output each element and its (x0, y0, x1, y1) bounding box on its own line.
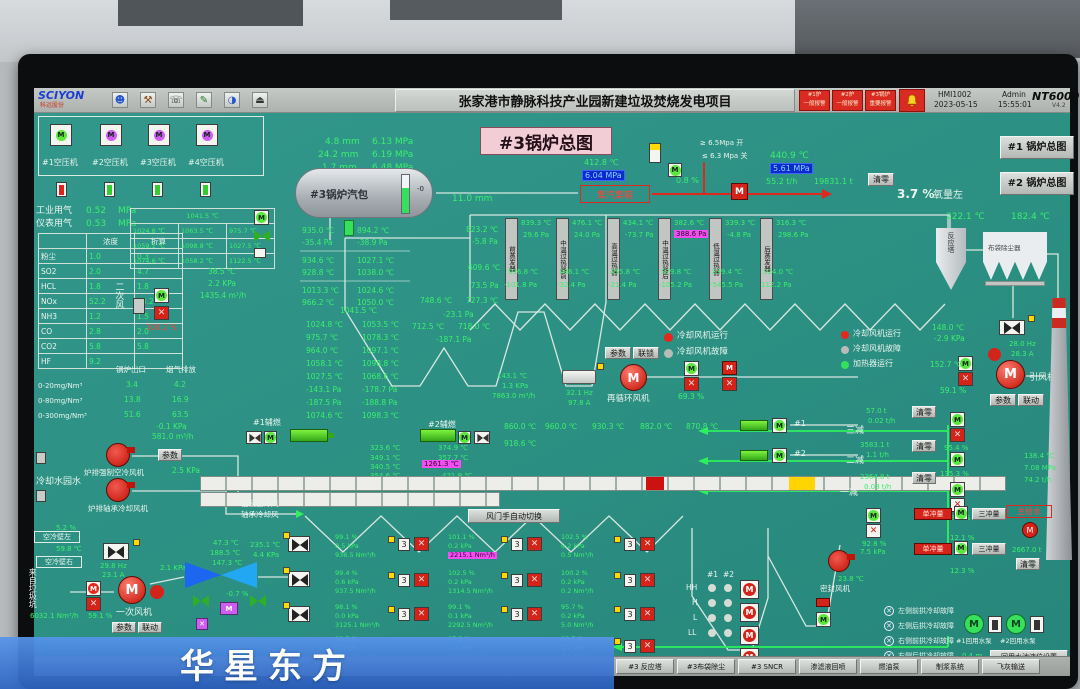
damper-icon[interactable] (527, 537, 542, 551)
burner-2-box[interactable] (474, 431, 490, 444)
fw-reg-pct-2: 12.3 % (950, 567, 974, 575)
paf-motor[interactable]: M (118, 576, 146, 604)
feedwater-flow: 74.2 t/h (1024, 476, 1051, 484)
hx-press: -73.7 Pa (625, 231, 654, 239)
wall-temp: 966.2 ℃ (302, 299, 334, 308)
instrument-air-value: 0.53 (86, 219, 106, 229)
range-header-2: 烟气排放 (166, 366, 196, 375)
safety-valve-icon[interactable] (649, 143, 661, 163)
hx-temp: 839.3 ℃ (521, 219, 551, 227)
vent-valve-motor[interactable] (254, 210, 269, 225)
window-frame (118, 0, 303, 26)
furnace-outlet-temp: 882.0 ℃ (640, 423, 672, 432)
aph-temp-3: 147.3 ℃ (212, 559, 242, 567)
paf-damper-motor[interactable] (86, 581, 101, 596)
single-element-box[interactable]: 单冲量 (914, 508, 952, 520)
desup-flow: 0.02 t/h (868, 417, 895, 425)
damper-flow: 936.5 Nm³/h (335, 552, 376, 559)
mode-box[interactable] (624, 574, 636, 587)
level-label: LL (688, 629, 696, 638)
recirc-fan-motor[interactable]: M (620, 364, 647, 391)
compressor-2-motor[interactable] (100, 124, 122, 146)
furnace-press: -187.5 Pa (306, 399, 341, 408)
desup-clear-button[interactable]: 清零 (912, 406, 936, 418)
vent-motor-valve[interactable] (668, 163, 682, 177)
misc-press: 7.5 kPa (860, 548, 886, 556)
compressor-3-motor[interactable] (148, 124, 170, 146)
fw-reg-motor-2[interactable] (954, 541, 968, 555)
wall-press: -35.4 Pa (302, 239, 333, 248)
desup-label: 一减 (840, 488, 858, 498)
wall-temp: 928.8 ℃ (302, 269, 334, 278)
range-row-label: 0-300mg/Nm³ (38, 412, 87, 420)
damper-icon[interactable] (414, 607, 429, 621)
mode-box[interactable] (398, 538, 410, 551)
rlegend-fault-dot (841, 346, 849, 354)
tools-icon[interactable] (140, 92, 156, 108)
steam-header-label: 集汽集箱 (597, 188, 633, 201)
table-row: HF9.2 (39, 354, 183, 369)
gfan-press-2: 2.5 KPa (172, 467, 200, 476)
recirc-hz: 32.1 Hz (566, 389, 593, 397)
valve-pair[interactable] (288, 606, 310, 622)
range-header-1: 锅炉出口 (116, 366, 146, 375)
recirc-param-button[interactable]: 参数 (605, 347, 631, 359)
grate-bearing-fan-label: 炉排轴承冷却风机 (88, 505, 148, 514)
hx-temp: 476.1 ℃ (572, 219, 602, 227)
range-row-value: 63.5 (172, 411, 189, 420)
compressor-4-motor[interactable] (196, 124, 218, 146)
level-lamp (724, 599, 732, 607)
damper-pct: 102.5 % (561, 534, 588, 541)
valve-pair[interactable] (288, 571, 310, 587)
idf-link-button[interactable]: 联动 (1018, 394, 1044, 406)
damper-kpa: 0.6 kPa (335, 579, 359, 586)
idf-inlet-press: -2.9 KPa (934, 335, 965, 344)
rlegend-run: 冷却风机运行 (853, 329, 901, 338)
table-row: 1059.1 ℃1098.8 ℃1027.5 ℃ (131, 239, 275, 254)
paf-amp: 23.1 A (102, 571, 125, 579)
baghouse-base (985, 281, 1045, 286)
wall-temp: 935.0 ℃ (302, 227, 334, 236)
desup-total: 2364.8 t (860, 473, 889, 481)
range-row-value: 4.2 (174, 381, 186, 390)
seal-fan-temp: 23.8 ℃ (838, 575, 864, 583)
recirc-valve-2[interactable]: M (722, 361, 737, 375)
window-frame (390, 0, 562, 20)
hx-press: -101.8 Pa (504, 281, 537, 289)
safety-open-setpoint: ≥ 6.5Mpa 开 (700, 139, 743, 147)
taskbar-button-slurry[interactable]: 制浆系统 (921, 659, 979, 674)
tag-icon (501, 572, 508, 579)
pump-valve[interactable] (988, 616, 1002, 633)
furnace-press: -143.1 Pa (306, 386, 341, 395)
drum-level-value: 11.0 mm (452, 194, 492, 204)
desup-valve-icon[interactable] (950, 428, 965, 442)
feeder-motor-1[interactable]: M (740, 580, 759, 599)
purple-damper-icon[interactable]: ✕ (196, 618, 208, 630)
burner-1-box[interactable] (246, 431, 262, 444)
damper-icon[interactable] (527, 573, 542, 587)
wall-temp: 1038.0 ℃ (357, 269, 394, 278)
main-steam-total: 19831.1 t (814, 177, 853, 186)
damper-icon[interactable] (640, 573, 655, 587)
level-lamp (724, 629, 732, 637)
hx-press: 29.6 Pa (523, 231, 549, 239)
table-row: 1041.5 ℃ (131, 209, 275, 224)
pass-press: -73.5 Pa (468, 282, 499, 291)
range-row-value: 3.4 (126, 381, 138, 390)
recirc-in-flow: 7863.0 m³/h (492, 392, 535, 400)
desup-pct: 95.4 % (944, 444, 968, 452)
users-icon[interactable] (112, 92, 128, 108)
alarm-box-2[interactable]: #2炉 一般报警 (832, 90, 863, 111)
fw-valve-motor[interactable] (866, 508, 881, 523)
hopper-col-1: #1 (707, 571, 718, 580)
tag-icon (614, 606, 621, 613)
furnace-outlet-temp: 960.0 ℃ (545, 423, 577, 432)
burner-1-lance (290, 429, 328, 442)
tag-icon (283, 567, 290, 574)
idf-opening: 59.1 % (940, 387, 966, 396)
level-label: L (693, 614, 697, 623)
steam-valve-icon[interactable] (250, 595, 266, 607)
furnace-temp: 1068.6 ℃ (362, 373, 399, 382)
damper-icon[interactable] (640, 537, 655, 551)
mode-box[interactable] (511, 608, 523, 621)
mode-box[interactable] (624, 640, 636, 653)
feeder-motor-2[interactable]: M (740, 603, 759, 622)
compressor-1-motor[interactable] (50, 124, 72, 146)
three-element-button-2[interactable]: 三冲量 (972, 543, 1006, 555)
burner-1-motor[interactable] (264, 431, 277, 444)
damper-pct: 100.2 % (561, 570, 588, 577)
level-lamp (724, 614, 732, 622)
secondary-air-opening: 100.2 % (146, 324, 177, 333)
title-panel: 张家港市静脉科技产业园新建垃圾焚烧发电项目 (395, 89, 795, 112)
hx-temp: 339.3 ℃ (725, 219, 755, 227)
screen-title: #3锅炉总图 (499, 129, 593, 154)
compressor-1-switch[interactable] (56, 182, 67, 197)
refuse-pit-label: 来自垃圾坑 (28, 568, 37, 608)
wall-temp: 1013.3 ℃ (302, 287, 339, 296)
level-lamp (708, 599, 716, 607)
flue-outlet-temp-2: 182.4 ℃ (1011, 212, 1050, 222)
fw-reg-motor[interactable] (954, 506, 968, 520)
damper-pct: 95.7 % (561, 604, 584, 611)
desup-valve-motor[interactable] (950, 452, 965, 467)
grate-temp: 349.1 ℃ (370, 454, 400, 462)
drum-level-gauge (401, 174, 410, 214)
hmi-date: 2023-05-15 (934, 101, 978, 110)
desup-clear-button[interactable]: 清零 (912, 440, 936, 452)
idf-motor[interactable]: M (996, 360, 1025, 389)
hmi-user: Admin (1002, 91, 1026, 100)
steam-valve-icon[interactable] (193, 595, 209, 607)
mode-box[interactable] (511, 574, 523, 587)
range-row-label: 0-20mg/Nm³ (38, 382, 82, 390)
paf-link-button[interactable]: 联动 (138, 622, 162, 633)
mode-box[interactable] (624, 538, 636, 551)
gfan-param-button[interactable]: 参数 (158, 449, 182, 461)
paf-param-button[interactable]: 参数 (112, 622, 136, 633)
compressor-1-label: #1空压机 (42, 158, 78, 167)
drum-press-2: 6.19 MPa (372, 150, 413, 160)
secondary-air-damper-icon[interactable] (154, 306, 169, 320)
level-lamp (708, 584, 716, 592)
damper-kpa: 0.2 kPa (561, 543, 585, 550)
header-press: 6.04 MPa (582, 170, 625, 181)
reuse-pump-2[interactable]: M (1006, 614, 1026, 634)
steam-header-box[interactable]: 集汽集箱 (580, 185, 650, 203)
feeder-motor-3[interactable]: M (740, 626, 759, 645)
damper-kpa: 0.2 kPa (561, 613, 585, 620)
paf-damper-icon[interactable] (86, 597, 101, 611)
aph-pct: -0.7 % (226, 590, 249, 598)
edit-icon[interactable] (196, 92, 212, 108)
taskbar-button-flyash[interactable]: 飞灰输送 (982, 659, 1040, 674)
industrial-air-label: 工业用气 (36, 206, 72, 216)
compressor-4-switch[interactable] (200, 182, 211, 197)
nav-boiler2-button[interactable]: #2 锅炉总图 (1000, 172, 1074, 195)
grate-temp: 340.5 ℃ (370, 463, 400, 471)
hx-press: -105.2 Pa (659, 281, 692, 289)
wall-left-tag: 空冷壁左 (34, 531, 80, 543)
recirc-opening: 69.3 % (678, 393, 704, 402)
mode-box[interactable] (398, 574, 410, 587)
alarm-2-line2: 一般报警 (833, 100, 862, 109)
pass-temp: 748.6 ℃ (420, 297, 452, 306)
hmi-station: HMI1002 (938, 91, 971, 100)
idf-hz: 28.0 Hz (1009, 340, 1036, 348)
furnace-temp: 1097.1 ℃ (362, 347, 399, 356)
vendor-logo: SCIYON (38, 90, 84, 103)
hx-press: 298.6 Pa (778, 231, 808, 239)
recirc-damper-icon[interactable] (684, 377, 699, 391)
furnace-temp: 1024.8 ℃ (306, 321, 343, 330)
feedwater-box: 主给水 (1006, 505, 1052, 518)
taskbar-button-reactor[interactable]: #3 反应塔 (616, 659, 674, 674)
damper-kpa: 0.2 kPa (448, 543, 472, 550)
damper-icon[interactable] (640, 607, 655, 621)
table-row: 1074.6 ℃1058.2 ℃1122.5 ℃ (131, 254, 275, 269)
burner-2-label: #2辅燃 (428, 420, 456, 429)
furnace-temp: 1098.8 ℃ (362, 360, 399, 369)
paf-flow: 6032.1 Nm³/h (30, 612, 78, 620)
hx-temp: 536.8 ℃ (508, 268, 538, 276)
header-temp: 412.8 ℃ (584, 158, 618, 167)
wall-right-tag: 空冷壁右 (36, 556, 82, 568)
cooling-fan-1-label: #1 (794, 419, 806, 428)
pass-temp: 712.5 ℃ (412, 323, 444, 332)
grate-temp-alarm: 1261.3 ℃ (422, 460, 461, 468)
rlegend-run-dot (841, 331, 849, 339)
industrial-air-value: 0.52 (86, 206, 106, 216)
drum-press-1: 6.13 MPa (372, 137, 413, 147)
hmi-time: 15:55:01 (998, 101, 1032, 110)
grate-cell-alarm-yellow (789, 477, 815, 490)
steam-valve-motor[interactable]: M (220, 602, 238, 615)
recirc-interlock-button[interactable]: 联锁 (633, 347, 659, 359)
range-row-label: 0-80mg/Nm³ (38, 397, 82, 405)
emission-header-blank (39, 234, 87, 249)
taskbar-button-sncr[interactable]: #3 SNCR (738, 659, 796, 674)
feedwater-pump[interactable]: M (1022, 522, 1038, 538)
damper-icon[interactable] (640, 639, 655, 653)
idf-param-button[interactable]: 参数 (990, 394, 1016, 406)
damper-flow: 5.0 Nm³/h (561, 622, 594, 629)
phone-icon[interactable] (168, 92, 184, 108)
legend-fault-dot (664, 349, 673, 358)
desup-valve-motor[interactable] (950, 412, 965, 427)
recirc-damper-icon-2[interactable] (722, 377, 737, 391)
compressor-3-switch[interactable] (152, 182, 163, 197)
cblock-head: 1041.5 ℃ (340, 307, 377, 316)
desup-total: 57.0 t (866, 407, 887, 415)
drum-gap-1: 4.8 mm (325, 137, 360, 147)
mode-box[interactable] (511, 538, 523, 551)
damper-mode-button[interactable]: 风门手自动切换 (468, 509, 560, 523)
damper-flow-alarm: 2215.1 Nm³/h (448, 552, 497, 559)
pump-valve[interactable] (1030, 616, 1044, 633)
damper-kpa: 0.5 kPa (335, 543, 359, 550)
cooling-fan-2-label: #2 (794, 449, 806, 458)
valve-pair[interactable] (288, 536, 310, 552)
damper-icon[interactable] (527, 607, 542, 621)
cooling-fan-1-motor[interactable] (772, 418, 787, 433)
steam-motor-valve[interactable]: M (731, 183, 748, 200)
alarm-bell-button[interactable] (899, 89, 925, 112)
seal-motor[interactable] (816, 612, 831, 627)
idf-outlet-temp: 152.7 ℃ (930, 361, 962, 370)
furnace-press: -178.7 Pa (362, 386, 397, 395)
recirc-fan-duct (562, 370, 596, 384)
furnace-temp: 1053.5 ℃ (362, 321, 399, 330)
watermark-banner: 华星东方 (0, 637, 614, 689)
hx-temp: 379.8 ℃ (661, 268, 691, 276)
furnace-temp: 964.0 ℃ (306, 347, 338, 356)
tag-icon (388, 572, 395, 579)
pass-temp: 718.0 ℃ (458, 323, 490, 332)
vendor-logo-sub: 科远股份 (40, 103, 64, 110)
damper-pct: 101.1 % (448, 534, 475, 541)
grate-temp: 323.6 ℃ (370, 444, 400, 452)
level-label: HH (686, 584, 697, 593)
damper-box[interactable] (133, 298, 145, 314)
grate-forced-fan[interactable] (106, 443, 130, 467)
furnace-temp: 1074.6 ℃ (306, 412, 343, 421)
level-label: H (692, 599, 698, 608)
level-lamp (724, 584, 732, 592)
furnace-temp: 1078.3 ℃ (362, 334, 399, 343)
three-element-button[interactable]: 三冲量 (972, 508, 1006, 520)
baghouse-label: 布袋除尘器 (988, 242, 1021, 252)
single-element-box-2[interactable]: 单冲量 (914, 543, 952, 555)
wall-left-temp: 59.8 ℃ (56, 545, 82, 553)
hx-press: -21.4 Pa (608, 281, 637, 289)
grate-temp-860: 860.0 ℃ (504, 423, 536, 432)
fw-valve-icon[interactable] (866, 524, 881, 538)
damper-icon[interactable] (414, 537, 429, 551)
taskbar-button-oilpump[interactable]: 燃油泵 (860, 659, 918, 674)
compressor-2-switch[interactable] (104, 182, 115, 197)
burner-2-motor[interactable] (458, 431, 471, 444)
cooling-fan-1[interactable] (740, 420, 768, 431)
furnace-press: -188.8 Pa (362, 399, 397, 408)
table-row: CO25.85.8 (39, 339, 183, 354)
hx-press: 24.0 Pa (574, 231, 600, 239)
reuse-pump-1[interactable]: M (964, 614, 984, 634)
grate-bearing-fan[interactable] (106, 478, 130, 502)
drum-gap-2: 24.2 mm (318, 150, 358, 160)
seal-status-box (816, 598, 830, 607)
nav-boiler1-button[interactable]: #1 锅炉总图 (1000, 136, 1074, 159)
idf-damper-icon[interactable] (958, 372, 973, 386)
water-box (36, 452, 46, 464)
damper-kpa: 0.1 kPa (448, 613, 472, 620)
cooling-fan-2[interactable] (740, 450, 768, 461)
hx-press-alarm: 388.6 Pa (674, 230, 708, 238)
furnace-temp: 1058.1 ℃ (306, 360, 343, 369)
paf-label: 一次风机 (116, 608, 152, 618)
damper-icon[interactable] (414, 573, 429, 587)
tag-icon (283, 602, 290, 609)
mode-box[interactable] (624, 608, 636, 621)
legend-run-label: 冷却风机运行 (677, 332, 728, 342)
chart-icon[interactable] (224, 92, 240, 108)
forced-air-label: 强制空冷风 (241, 500, 279, 509)
furnace-temp: 975.7 ℃ (306, 334, 338, 343)
steam-total-clear-button[interactable]: 清零 (868, 173, 894, 186)
hx-temp: 434.1 ℃ (623, 219, 653, 227)
seal-fan[interactable] (828, 550, 850, 572)
damper-flow: 2292.5 Nm³/h (448, 622, 493, 629)
taskbar-button-leachate[interactable]: 渗滤液回喷 (799, 659, 857, 674)
alarm-box-1[interactable]: #1炉 一般报警 (799, 90, 830, 111)
vent-valve-icon[interactable] (254, 230, 270, 242)
mode-box[interactable] (398, 608, 410, 621)
hx-temp: 382.6 ℃ (674, 219, 704, 227)
grate-temp: 374.9 ℃ (438, 444, 468, 452)
tag-icon (388, 536, 395, 543)
project-title: 张家港市静脉科技产业园新建垃圾焚烧发电项目 (458, 91, 731, 110)
alarm-box-3[interactable]: #3锅炉 重要报警 (865, 90, 896, 111)
wall-temp: 894.2 ℃ (357, 227, 389, 236)
paf-press: 2.1 KPa (160, 564, 186, 572)
desup-valve-motor[interactable] (950, 482, 965, 497)
main-steam-press: 5.61 MPa (770, 163, 813, 174)
secondary-air-fan-motor[interactable] (154, 288, 169, 303)
taskbar-button-baghouse[interactable]: #3布袋除尘 (677, 659, 735, 674)
burner-1-label: #1辅燃 (253, 418, 281, 427)
cooling-fan-2-motor[interactable] (772, 448, 787, 463)
damper-pct: 98.1 % (335, 604, 358, 611)
recirc-damper-motor[interactable] (684, 361, 699, 376)
vent-box[interactable] (254, 248, 266, 258)
drum-blowdown (344, 220, 354, 236)
desup-clear-button[interactable]: 清零 (912, 472, 936, 484)
desup-pct: 135.3 % (940, 470, 969, 478)
flue-outlet-temp-1: 222.1 ℃ (946, 212, 985, 222)
secondary-air-flow: 1435.4 m³/h (200, 292, 246, 301)
secondary-air-temp: 38.5 ℃ (208, 268, 236, 277)
alarm-1-line2: 一般报警 (800, 100, 829, 109)
exit-icon[interactable] (252, 92, 268, 108)
recirc-in-temp: 143.1 ℃ (497, 372, 527, 380)
paf-hz: 29.8 Hz (100, 562, 127, 570)
fw-total-clear-button[interactable]: 清零 (1016, 558, 1040, 570)
drum-label: #3锅炉汽包 (310, 187, 368, 202)
